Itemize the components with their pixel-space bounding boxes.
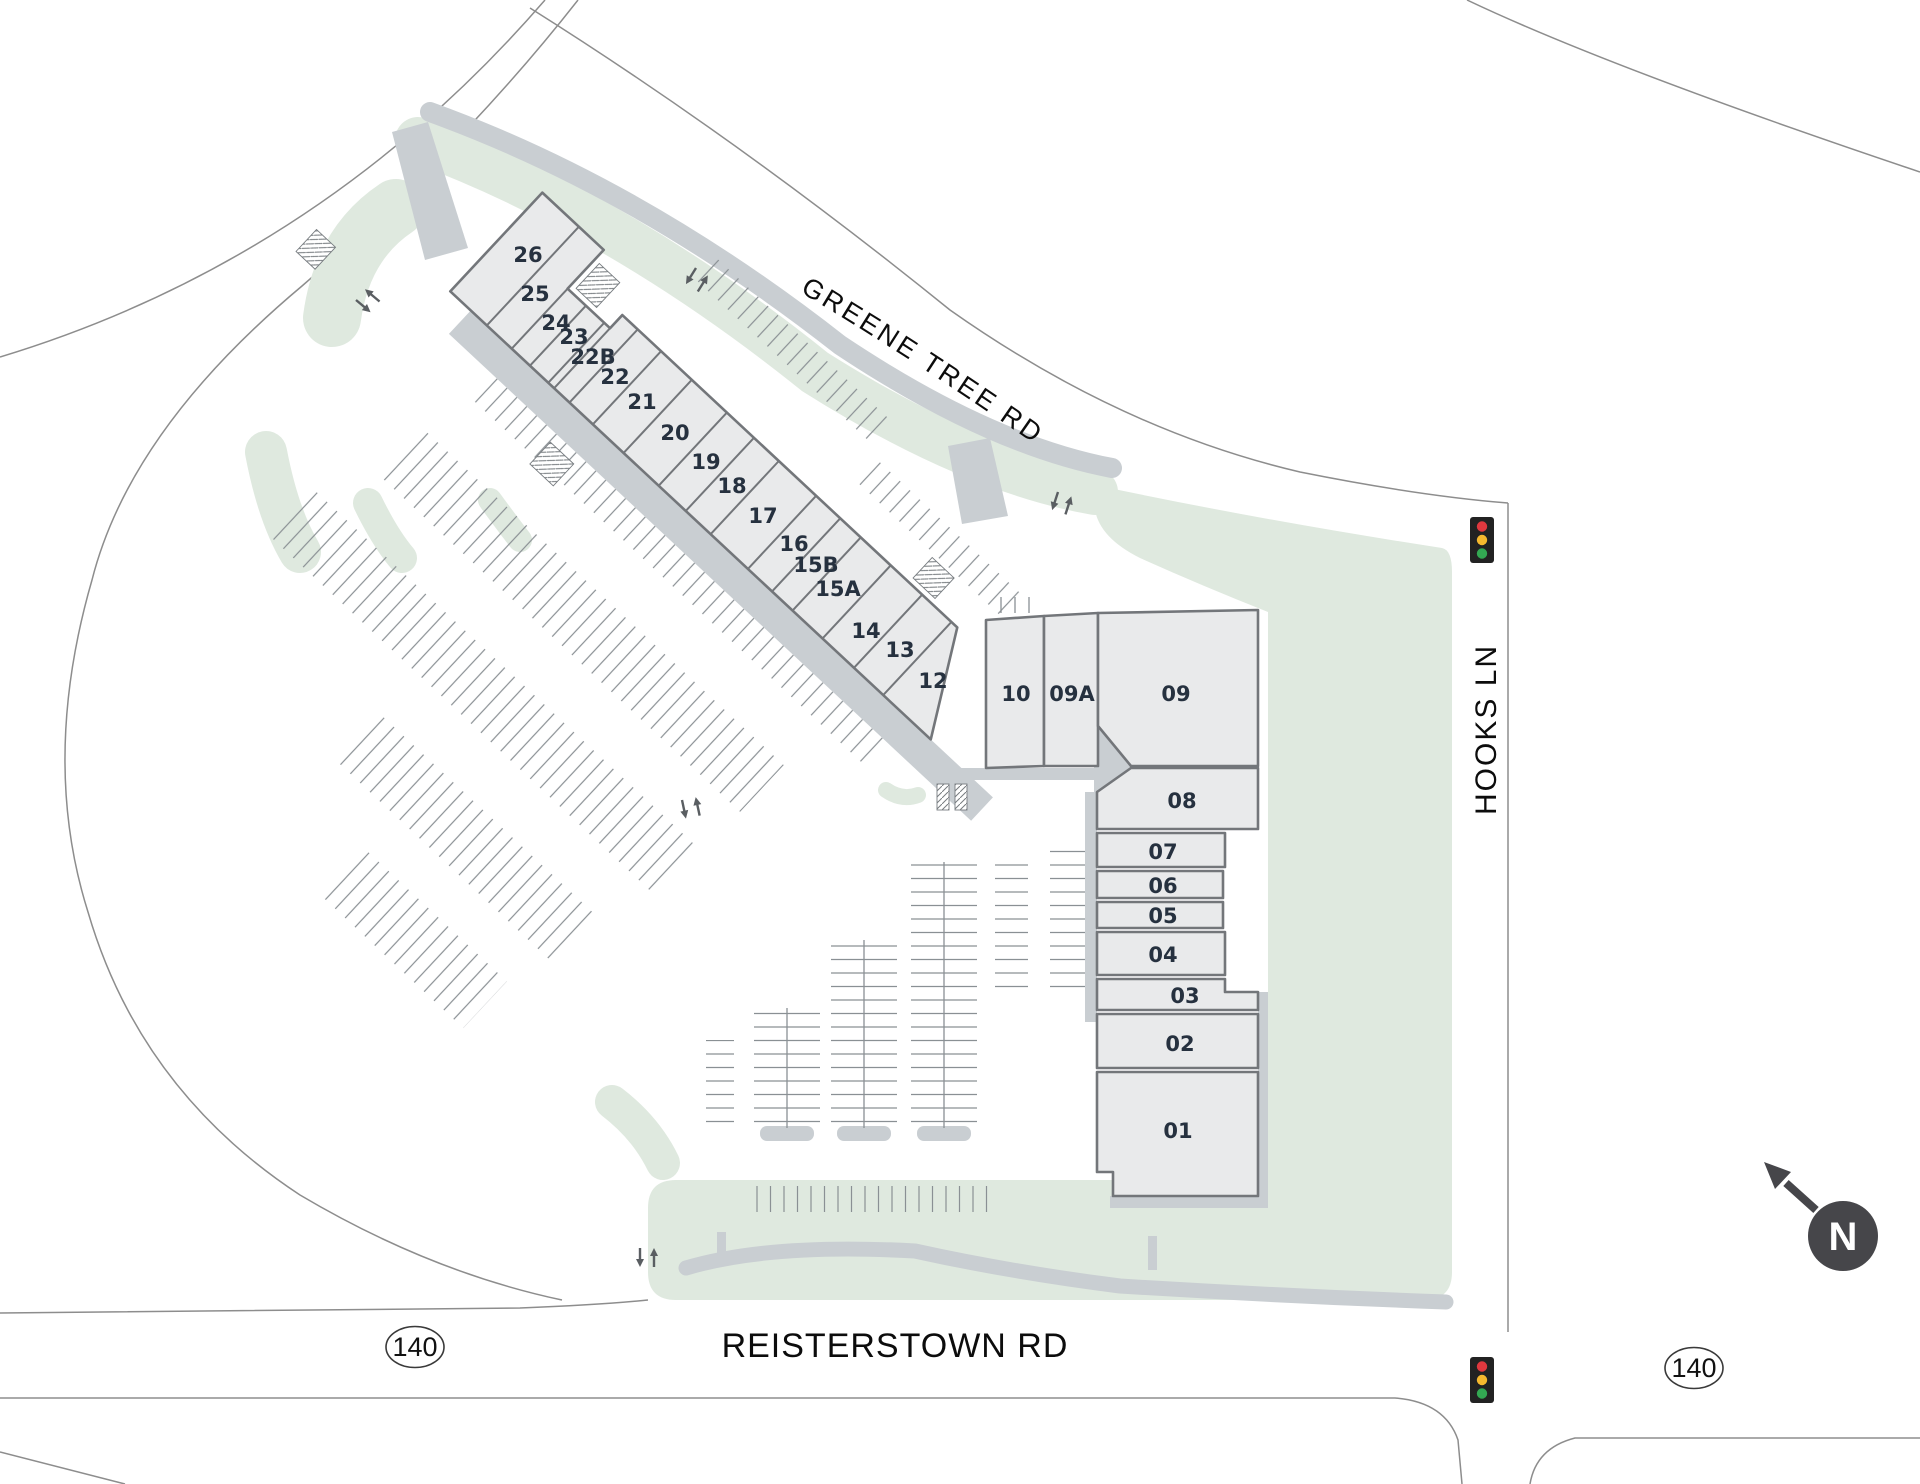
- green-island-4: [612, 1102, 663, 1163]
- unit-label-25: 25: [520, 282, 549, 306]
- unit-label-13: 13: [885, 638, 914, 662]
- north-compass: N: [1764, 1162, 1878, 1271]
- traffic-light-icon: [1470, 1357, 1494, 1403]
- buildings-east: [937, 610, 1258, 1196]
- sidewalk-east-of-01: [1258, 992, 1268, 1208]
- svg-text:N: N: [1829, 1215, 1858, 1259]
- traffic-light-icon: [1470, 517, 1494, 563]
- unit-label-04: 04: [1148, 943, 1177, 967]
- unit-label-26: 26: [513, 243, 542, 267]
- parking-row-south-edge: [746, 1186, 998, 1212]
- road-edge-reisterstown-north-west: [0, 1300, 648, 1313]
- unit-label-20: 20: [660, 421, 689, 445]
- road-edge-reisterstown-south: [0, 1398, 1462, 1484]
- hooks-ln-label: HOOKS LN: [1470, 644, 1503, 815]
- unit-label-18: 18: [717, 474, 746, 498]
- unit-label-19: 19: [691, 450, 720, 474]
- unit-label-22: 22: [600, 365, 629, 389]
- parking-col-4: [995, 862, 1028, 992]
- unit-label-03: 03: [1170, 984, 1199, 1008]
- parking-island-cap-1: [760, 1126, 814, 1141]
- unit-label-21: 21: [627, 390, 656, 414]
- drive-stub-east: [1148, 1236, 1157, 1270]
- green-island-5: [886, 790, 918, 797]
- unit-label-15B: 15B: [793, 553, 838, 577]
- unit-label-01: 01: [1163, 1119, 1192, 1143]
- site-plan: 26 25 24 23 22B 22 21 20 19 18 17 16 15B…: [0, 0, 1920, 1484]
- unit-label-12: 12: [918, 669, 947, 693]
- sidewalk-west-of-column: [1085, 792, 1097, 1022]
- unit-label-09A: 09A: [1049, 682, 1095, 706]
- unit-label-07: 07: [1148, 840, 1177, 864]
- north-arrow-icon: [1786, 1183, 1816, 1210]
- route-shield-west: 140: [386, 1327, 444, 1368]
- unit-label-17: 17: [748, 504, 777, 528]
- parking-col-left: [706, 1040, 734, 1128]
- unit-label-02: 02: [1165, 1032, 1194, 1056]
- unit-label-10: 10: [1001, 682, 1030, 706]
- unit-label-08: 08: [1167, 789, 1196, 813]
- unit-label-09: 09: [1161, 682, 1190, 706]
- unit-label-05: 05: [1148, 904, 1177, 928]
- unit-label-06: 06: [1148, 874, 1177, 898]
- parking-island-cap-3: [917, 1126, 971, 1141]
- svg-text:140: 140: [1671, 1353, 1716, 1383]
- drive-stub-west: [717, 1232, 726, 1266]
- crosswalk-hatch-5: [937, 784, 949, 810]
- unit-label-15A: 15A: [815, 577, 861, 601]
- parking-island-cap-2: [837, 1126, 891, 1141]
- svg-text:140: 140: [392, 1332, 437, 1362]
- road-edge-top-right: [1467, 0, 1920, 172]
- green-entrance-west-blob: [332, 208, 396, 318]
- crosswalk-hatch-6: [955, 784, 967, 810]
- road-edge-bottom-left-corner: [0, 1452, 125, 1484]
- reisterstown-rd-label: REISTERSTOWN RD: [722, 1327, 1069, 1365]
- unit-label-14: 14: [851, 619, 880, 643]
- direction-arrows-icon: [678, 796, 703, 819]
- sidewalk-south-of-01: [1110, 1196, 1268, 1208]
- road-edge-bottom-right-parcel: [1530, 1438, 1920, 1484]
- parking-col-5: [1050, 850, 1085, 998]
- route-shield-east: 140: [1665, 1348, 1723, 1389]
- direction-arrows-icon: [636, 1248, 658, 1267]
